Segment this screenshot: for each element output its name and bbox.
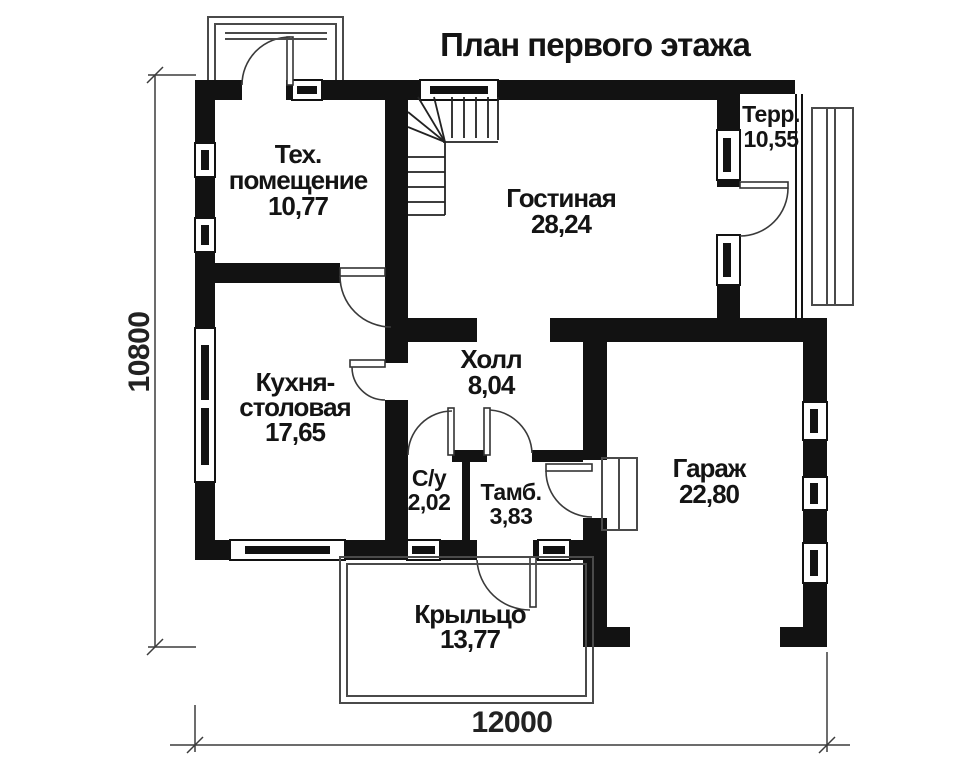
dimension-width-label: 12000: [472, 706, 553, 739]
svg-text:10,55: 10,55: [743, 126, 799, 152]
plan-title: План первого этажа: [440, 26, 751, 63]
garage-door-interior: [546, 464, 592, 517]
svg-text:8,04: 8,04: [468, 370, 516, 400]
terrace-door: [740, 182, 788, 236]
room-label-living: Гостиная 28,24: [506, 183, 616, 239]
svg-text:17,65: 17,65: [265, 417, 326, 447]
svg-text:13,77: 13,77: [440, 624, 501, 654]
svg-text:10,77: 10,77: [268, 191, 329, 221]
window: [420, 80, 498, 100]
window: [230, 540, 345, 560]
window: [195, 328, 215, 482]
svg-text:22,80: 22,80: [679, 479, 740, 509]
dimension-vertical: 10800: [123, 67, 196, 655]
svg-text:Терр.: Терр.: [742, 101, 800, 127]
window: [717, 130, 740, 180]
room-label-wc: С/у 2,02: [408, 465, 451, 515]
room-label-tech: Тех. помещение 10,77: [229, 139, 368, 221]
window: [803, 402, 827, 440]
entry-door-top: [242, 37, 293, 85]
room-label-terrace: Терр. 10,55: [742, 101, 800, 152]
window: [195, 143, 215, 177]
svg-text:2,02: 2,02: [408, 489, 451, 515]
svg-text:3,83: 3,83: [490, 503, 533, 529]
wc-door: [408, 408, 454, 455]
staircase: [408, 97, 498, 215]
window: [292, 80, 322, 100]
window: [803, 543, 827, 583]
window: [803, 477, 827, 510]
room-label-vestibule: Тамб. 3,83: [480, 479, 541, 529]
room-label-hall: Холл 8,04: [460, 344, 521, 400]
kitchen-hall-door: [350, 360, 385, 400]
svg-text:28,24: 28,24: [531, 209, 593, 239]
terrace-side-deck: [812, 108, 853, 305]
vestibule-door: [484, 408, 532, 455]
top-entry-porch: [208, 17, 343, 80]
room-label-garage: Гараж 22,80: [673, 453, 747, 509]
room-label-porch: Крыльцо 13,77: [414, 599, 525, 654]
dimension-height-label: 10800: [123, 312, 156, 393]
svg-text:Тамб.: Тамб.: [480, 479, 541, 505]
floor-plan-page: 10800 12000 План первого этажа Тех. поме…: [0, 0, 978, 768]
garage-door-step: [602, 458, 637, 530]
svg-text:С/у: С/у: [412, 465, 447, 491]
floor-plan-drawing: 10800 12000 План первого этажа Тех. поме…: [0, 0, 978, 768]
tech-kitchen-door: [340, 268, 391, 327]
window: [195, 218, 215, 252]
room-label-kitchen: Кухня- столовая 17,65: [239, 367, 350, 447]
window: [717, 235, 740, 285]
